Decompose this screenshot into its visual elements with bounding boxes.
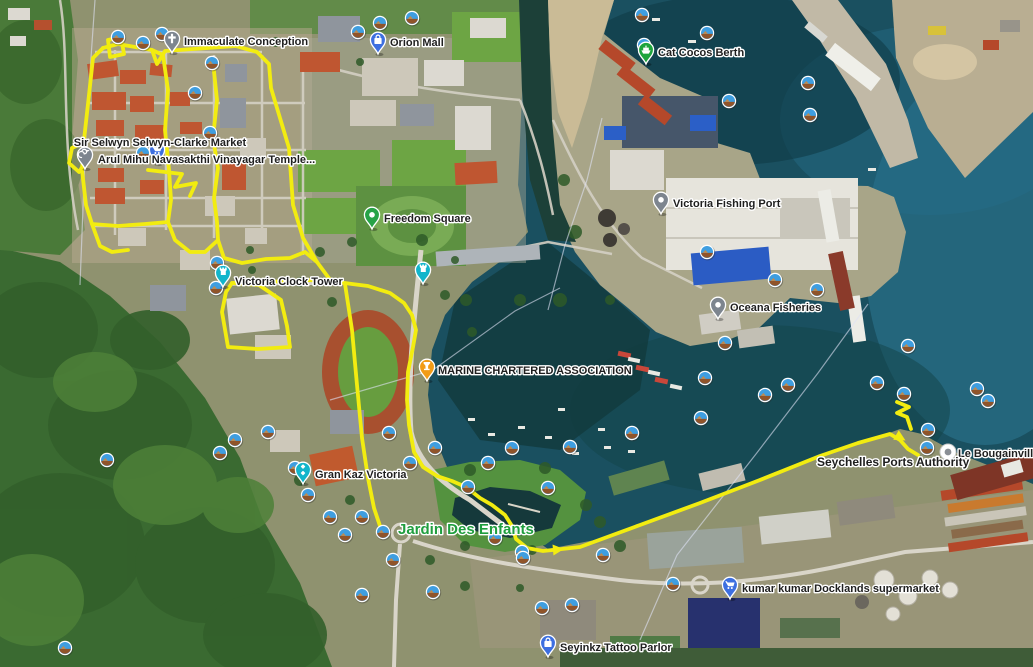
photo-marker[interactable] [718,336,733,352]
poi-pin-freedom-square[interactable] [364,207,379,231]
photo-marker[interactable] [803,108,818,124]
area-label-jardin-des-enfants: Jardin Des Enfants [398,521,534,538]
photo-marker[interactable] [426,585,441,601]
poi-pin-marine-chartered-association[interactable] [419,359,434,383]
poi-pin-immaculate-conception[interactable] [164,31,179,55]
photo-marker[interactable] [373,16,388,32]
map-markers-layer: Immaculate ConceptionOrion MallCat Cocos… [0,0,1033,667]
poi-label-victoria-clock-tower: Victoria Clock Tower [235,276,344,288]
photo-marker[interactable] [596,548,611,564]
poi-label-marine-chartered-association: MARINE CHARTERED ASSOCIATION [438,365,632,377]
photo-marker[interactable] [981,394,996,410]
photo-marker[interactable] [376,525,391,541]
photo-marker[interactable] [565,598,580,614]
poi-label-immaculate-conception: Immaculate Conception [184,36,308,48]
photo-marker[interactable] [541,481,556,497]
photo-marker[interactable] [722,94,737,110]
photo-marker[interactable] [801,76,816,92]
photo-marker[interactable] [901,339,916,355]
photo-marker[interactable] [382,426,397,442]
poi-label-freedom-square: Freedom Square [384,213,471,225]
photo-marker[interactable] [481,456,496,472]
photo-marker[interactable] [921,423,936,439]
photo-marker[interactable] [768,273,783,289]
poi-pin-orion-mall[interactable] [370,32,385,56]
photo-marker[interactable] [213,446,228,462]
poi-pin-arul-mihu-navasakthi-vinayagar-temple[interactable] [77,147,92,171]
photo-marker[interactable] [781,378,796,394]
photo-marker[interactable] [205,56,220,72]
poi-pin-kumar-kumar-docklands-supermarket[interactable] [722,577,737,601]
photo-marker[interactable] [323,510,338,526]
poi-label-gran-kaz-victoria: Gran Kaz Victoria [315,469,407,481]
photo-marker[interactable] [810,283,825,299]
photo-marker[interactable] [700,26,715,42]
dot-icon [715,302,721,308]
poi-pin-victoria-fishing-port[interactable] [653,192,668,216]
satellite-map-viewport[interactable]: Immaculate ConceptionOrion MallCat Cocos… [0,0,1033,667]
photo-marker[interactable] [970,382,985,398]
poi-label-orion-mall: Orion Mall [390,37,444,49]
photo-marker[interactable] [694,411,709,427]
area-label-seychelles-ports-authority: Seychelles Ports Authority [817,455,970,469]
photo-marker[interactable] [428,441,443,457]
photo-marker[interactable] [301,488,316,504]
poi-pin-seyinkz-tattoo-parlor[interactable] [540,635,555,659]
photo-marker[interactable] [625,426,640,442]
photo-marker[interactable] [111,30,126,46]
poi-label-oceana-fisheries: Oceana Fisheries [730,302,821,314]
photo-marker[interactable] [58,641,73,657]
poi-pin-oceana-fisheries[interactable] [710,297,725,321]
photo-marker[interactable] [405,11,420,27]
photo-marker[interactable] [100,453,115,469]
photo-marker[interactable] [666,577,681,593]
photo-marker[interactable] [698,371,713,387]
poi-label-arul-mihu-navasakthi-vinayagar-temple: Arul Mihu Navasakthi Vinayagar Temple... [98,154,315,166]
poi-pin-clock-tower-pin-2[interactable] [415,262,430,286]
photo-marker[interactable] [386,553,401,569]
photo-marker[interactable] [635,8,650,24]
poi-pin-gran-kaz-victoria[interactable] [295,462,310,486]
dot-icon [658,197,664,203]
poi-label-sir-selwyn-selwyn-clarke-market: Sir Selwyn Selwyn-Clarke Market [74,137,247,149]
photo-marker[interactable] [700,245,715,261]
photo-marker[interactable] [758,388,773,404]
photo-marker[interactable] [261,425,276,441]
poi-label-kumar-kumar-docklands-supermarket: kumar kumar Docklands supermarket [742,583,939,595]
photo-marker[interactable] [188,86,203,102]
photo-marker[interactable] [355,510,370,526]
dot-icon [369,212,375,218]
poi-pin-cat-cocos-berth[interactable] [638,42,653,66]
photo-marker[interactable] [870,376,885,392]
photo-marker[interactable] [351,25,366,41]
poi-label-seyinkz-tattoo-parlor: Seyinkz Tattoo Parlor [560,642,672,654]
photo-marker[interactable] [338,528,353,544]
photo-marker[interactable] [505,441,520,457]
photo-marker[interactable] [535,601,550,617]
photo-marker[interactable] [563,440,578,456]
photo-marker[interactable] [136,36,151,52]
poi-label-cat-cocos-berth: Cat Cocos Berth [658,47,744,59]
photo-marker[interactable] [228,433,243,449]
photo-marker[interactable] [897,387,912,403]
photo-marker[interactable] [355,588,370,604]
photo-marker[interactable] [461,480,476,496]
poi-label-victoria-fishing-port: Victoria Fishing Port [673,198,781,210]
